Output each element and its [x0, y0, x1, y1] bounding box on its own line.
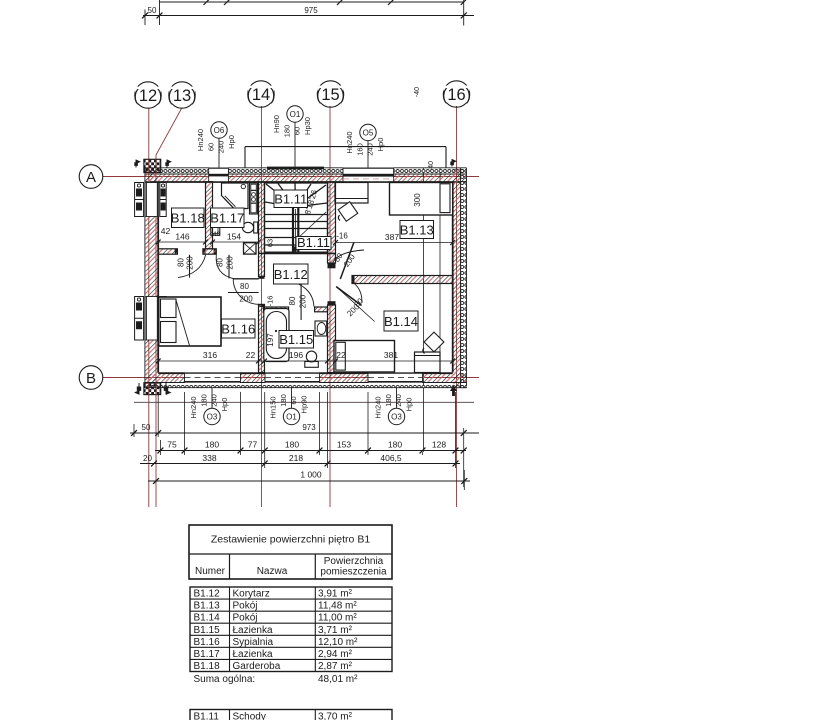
svg-text:(15): (15) — [316, 86, 345, 104]
svg-text:(16): (16) — [442, 86, 471, 104]
svg-text:160: 160 — [356, 143, 365, 156]
svg-text:128: 128 — [432, 440, 446, 450]
svg-text:B1.11: B1.11 — [194, 712, 220, 720]
svg-text:197: 197 — [266, 333, 275, 347]
svg-text:B1.11: B1.11 — [274, 192, 307, 207]
svg-text:60: 60 — [293, 127, 302, 135]
svg-text:Hp0: Hp0 — [220, 398, 229, 412]
svg-text:pomieszczenia: pomieszczenia — [320, 567, 387, 578]
svg-text:Hp0: Hp0 — [227, 135, 236, 149]
svg-text:Hn240: Hn240 — [196, 129, 205, 151]
svg-text:50: 50 — [148, 6, 157, 15]
svg-text:973: 973 — [302, 423, 316, 432]
svg-text:Powierzchnia: Powierzchnia — [324, 556, 384, 567]
svg-text:Hn240: Hn240 — [374, 396, 383, 418]
svg-text:Sypialnia: Sypialnia — [233, 637, 274, 648]
svg-text:Łazienka: Łazienka — [233, 649, 273, 660]
svg-text:381: 381 — [384, 350, 398, 360]
svg-text:50: 50 — [142, 423, 151, 432]
svg-text:2,94 m²: 2,94 m² — [318, 649, 353, 660]
svg-text:22: 22 — [336, 350, 346, 360]
svg-text:(13): (13) — [167, 87, 196, 105]
svg-text:387: 387 — [385, 232, 399, 242]
svg-text:Hp0: Hp0 — [405, 398, 414, 412]
svg-text:-16: -16 — [266, 296, 275, 307]
svg-text:240: 240 — [217, 141, 226, 154]
svg-text:Hn240: Hn240 — [189, 396, 198, 418]
svg-text:80: 80 — [215, 258, 224, 267]
svg-text:Pokój: Pokój — [233, 613, 258, 624]
svg-text:3,71 m²: 3,71 m² — [318, 625, 353, 636]
svg-text:Suma ogólna:: Suma ogólna: — [194, 674, 256, 685]
svg-text:B1.12: B1.12 — [194, 589, 221, 600]
svg-text:B1.12: B1.12 — [274, 267, 308, 282]
svg-text:48: 48 — [213, 231, 221, 238]
svg-text:O6: O6 — [214, 126, 225, 135]
svg-text:B1.13: B1.13 — [400, 223, 434, 238]
svg-text:80: 80 — [288, 296, 297, 305]
svg-text:O1: O1 — [286, 413, 297, 422]
svg-text:200: 200 — [226, 256, 235, 270]
svg-text:(12): (12) — [133, 87, 162, 105]
svg-text:Numer: Numer — [195, 566, 226, 577]
svg-text:48,01 m²: 48,01 m² — [318, 674, 358, 685]
svg-text:Hn90: Hn90 — [272, 115, 281, 133]
svg-text:77: 77 — [248, 440, 258, 450]
svg-text:3,70 m²: 3,70 m² — [318, 712, 353, 720]
svg-text:75: 75 — [167, 440, 177, 450]
svg-text:Hn240: Hn240 — [345, 131, 354, 153]
svg-text:1 000: 1 000 — [300, 470, 322, 480]
svg-text:B1.16: B1.16 — [194, 637, 221, 648]
svg-text:(14): (14) — [246, 86, 275, 104]
svg-text:180: 180 — [279, 394, 288, 407]
svg-text:153: 153 — [337, 440, 351, 450]
svg-text:B1.13: B1.13 — [194, 601, 221, 612]
svg-text:B1.15: B1.15 — [279, 332, 313, 347]
svg-text:180: 180 — [205, 440, 219, 450]
svg-text:B1.14: B1.14 — [384, 314, 418, 329]
svg-text:Garderoba: Garderoba — [233, 661, 281, 672]
svg-text:A: A — [86, 169, 96, 186]
svg-text:11,00 m²: 11,00 m² — [318, 613, 357, 624]
svg-text:180: 180 — [285, 440, 299, 450]
svg-text:20: 20 — [143, 454, 152, 463]
svg-text:Hn150: Hn150 — [269, 396, 278, 418]
svg-text:B1.17: B1.17 — [210, 211, 244, 226]
svg-text:975: 975 — [304, 6, 318, 15]
svg-text:300: 300 — [413, 193, 422, 207]
svg-text:63: 63 — [266, 239, 275, 247]
svg-text:O3: O3 — [391, 413, 402, 422]
svg-text:154: 154 — [227, 232, 241, 242]
svg-text:Zestawienie powierzchni piętro: Zestawienie powierzchni piętro B1 — [211, 534, 370, 546]
svg-text:338: 338 — [202, 453, 216, 463]
svg-text:Łazienka: Łazienka — [233, 625, 273, 636]
svg-text:200: 200 — [299, 294, 308, 308]
svg-text:O5: O5 — [363, 129, 374, 138]
svg-text:80: 80 — [176, 258, 185, 267]
svg-text:180: 180 — [388, 440, 402, 450]
svg-text:Pokój: Pokój — [233, 601, 258, 612]
svg-text:B1.18: B1.18 — [194, 661, 221, 672]
svg-text:316: 316 — [203, 350, 217, 360]
svg-text:B1.17: B1.17 — [194, 649, 221, 660]
svg-text:240: 240 — [366, 143, 375, 156]
svg-text:11,48 m²: 11,48 m² — [318, 601, 357, 612]
svg-text:42: 42 — [161, 226, 171, 236]
svg-text:60: 60 — [207, 143, 216, 151]
svg-text:2,87 m²: 2,87 m² — [318, 661, 353, 672]
svg-text:218: 218 — [289, 453, 303, 463]
svg-text:22: 22 — [246, 350, 256, 360]
svg-text:406,5: 406,5 — [380, 453, 402, 463]
svg-text:B1.11: B1.11 — [297, 235, 330, 250]
svg-text:Nazwa: Nazwa — [257, 566, 288, 577]
svg-text:Hp30: Hp30 — [303, 117, 312, 135]
svg-text:240: 240 — [210, 394, 219, 407]
svg-text:B1.18: B1.18 — [171, 211, 205, 226]
svg-text:Hp0: Hp0 — [376, 138, 385, 152]
svg-text:180: 180 — [283, 125, 292, 138]
svg-text:Schody: Schody — [233, 712, 266, 720]
svg-text:Hp90: Hp90 — [300, 396, 309, 414]
svg-text:200: 200 — [239, 295, 253, 304]
svg-text:O1: O1 — [290, 110, 301, 119]
svg-text:-16: -16 — [336, 232, 348, 241]
svg-text:B1.14: B1.14 — [194, 613, 221, 624]
svg-text:O3: O3 — [207, 413, 218, 422]
svg-text:200: 200 — [186, 256, 195, 270]
svg-text:3,91 m²: 3,91 m² — [318, 589, 353, 600]
svg-text:60: 60 — [289, 396, 298, 404]
svg-text:-40: -40 — [414, 87, 421, 97]
svg-text:80: 80 — [240, 282, 249, 291]
svg-text:196: 196 — [289, 350, 303, 360]
svg-text:Korytarz: Korytarz — [233, 589, 270, 600]
svg-text:180: 180 — [200, 394, 209, 407]
svg-text:B1.16: B1.16 — [221, 322, 255, 337]
svg-text:B1.15: B1.15 — [194, 625, 221, 636]
svg-text:180: 180 — [384, 394, 393, 407]
svg-text:146: 146 — [175, 232, 189, 242]
svg-text:B: B — [86, 370, 96, 387]
svg-text:240: 240 — [394, 394, 403, 407]
svg-text:12,10 m²: 12,10 m² — [318, 637, 358, 648]
